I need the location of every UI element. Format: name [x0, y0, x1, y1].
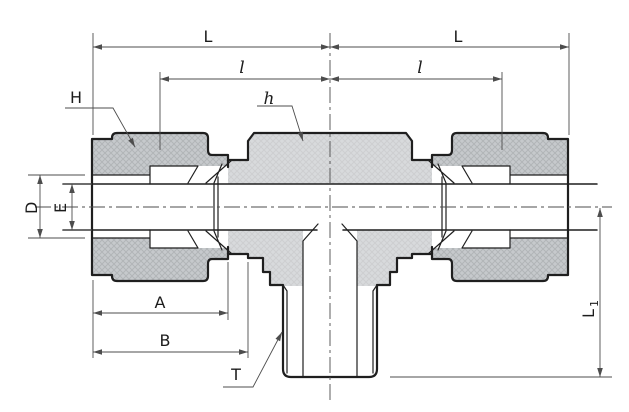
dim-label-L-left: L	[204, 27, 213, 46]
dim-label-D: D	[22, 202, 41, 214]
dim-L-left: L	[93, 27, 330, 135]
dim-L-right: L	[330, 27, 569, 135]
dim-label-E: E	[51, 203, 70, 213]
dim-label-L1-subscript: 1	[588, 300, 601, 307]
dim-label-l-right: l	[417, 58, 422, 78]
dim-label-L-right: L	[454, 27, 463, 46]
label-h: h	[264, 89, 275, 109]
label-H: H	[70, 88, 82, 107]
dim-label-L1: L	[579, 309, 598, 318]
dim-label-A: A	[155, 293, 166, 312]
technical-drawing: L L l l H h D	[0, 0, 629, 412]
label-T-leader: T	[223, 332, 282, 387]
dim-label-l-left: l	[239, 58, 244, 78]
label-T: T	[230, 365, 241, 384]
dim-label-B: B	[160, 331, 171, 350]
fitting-drawing-svg: L L l l H h D	[0, 0, 629, 412]
